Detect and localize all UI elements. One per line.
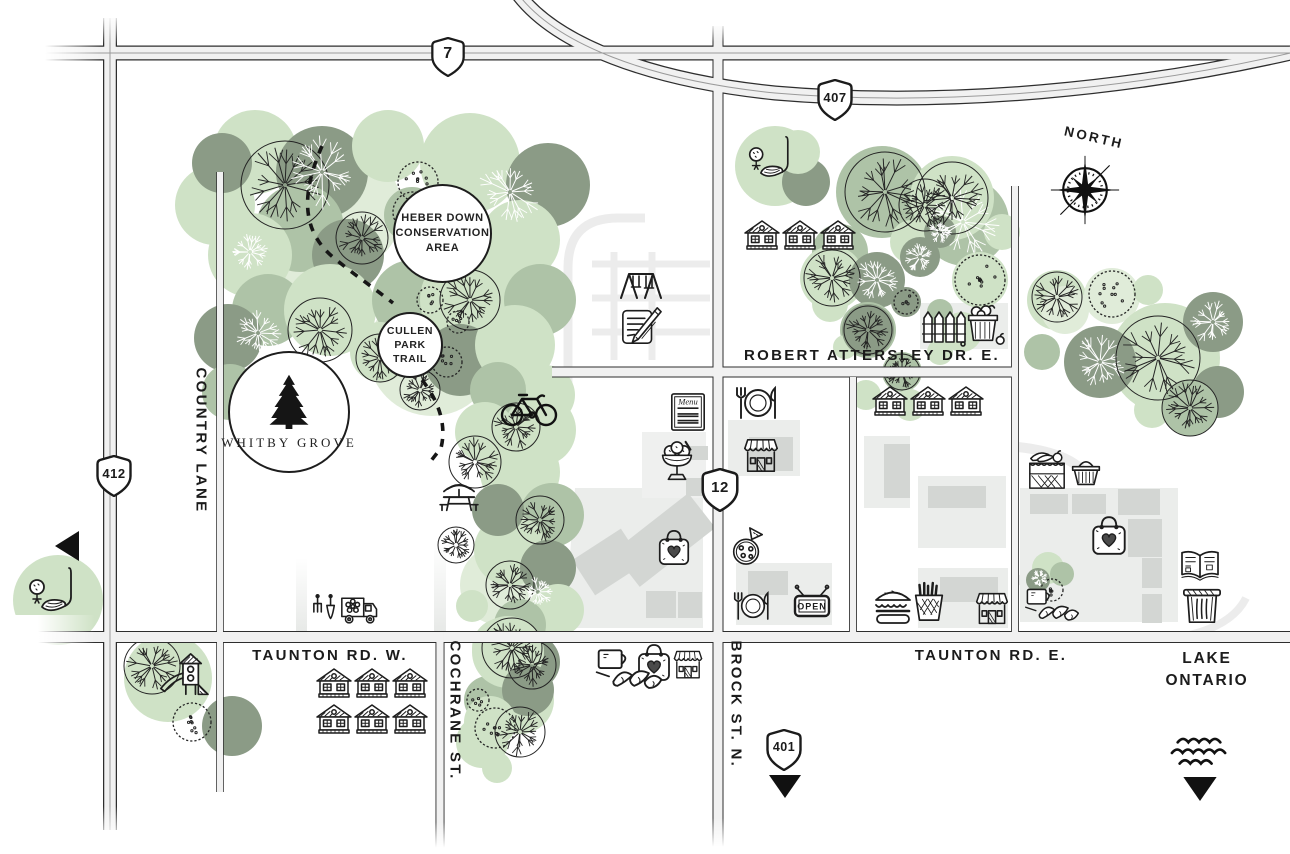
restaurant-plate-icon [735,382,781,424]
burger-icon [872,584,914,628]
storefront-icon [974,590,1010,628]
swing-set-icon [618,270,664,300]
golf-course-icon [24,562,84,624]
restaurant-plate-icon [733,586,773,626]
west-direction-arrow [54,530,80,562]
golf-course-icon [742,134,802,186]
cullen-park-trail-badge: CULLEN PARK TRAIL [377,312,443,378]
houses-row [744,220,856,252]
fruit-market-icon [1026,448,1068,492]
bicycle-icon [500,384,558,428]
school-notepad-icon [620,305,662,347]
street-label-country-lane: COUNTRY LANE [193,366,210,516]
garden-fence-icon [920,308,966,348]
shopping-basket-icon [1070,456,1102,488]
whitby-grove-logo-badge: WHITBY GROVE [228,351,350,473]
harvest-basket-icon [962,304,1004,348]
cafe-croissant-icon [592,644,666,690]
storefront-icon [742,437,780,475]
library-book-icon [1178,548,1222,584]
highway-401-shield: 401 [762,729,806,771]
pizza-icon [728,526,766,566]
gift-bag-heart-icon [655,528,693,568]
cafe-croissant-icon [1024,582,1080,624]
community-map: 7 407 412 12 401 COUNTRY LANE COCHRANE S… [0,0,1290,854]
flower-delivery-truck-icon [340,594,382,628]
street-label-taunton-e: TAUNTON RD. E. [900,647,1082,664]
ice-cream-sundae-icon [658,440,696,488]
highway-412-shield: 412 [93,455,135,497]
street-label-robert-attersley: ROBERT ATTERSLEY DR. E. [744,347,984,364]
compass-rose-icon [1049,154,1121,226]
highway-407-shield: 407 [812,79,858,121]
houses-row [316,704,428,736]
waste-bin-icon [1180,584,1224,626]
houses-row [316,668,428,700]
highway-401-direction-arrow [768,774,802,799]
garden-tools-icon [312,594,338,628]
picnic-table-icon [438,482,480,516]
menu-board-icon: Menu [668,390,708,434]
street-label-brock: BROCK ST. N. [728,641,745,767]
menu-sign-text: Menu [677,396,698,406]
storefront-icon [672,648,704,682]
highway-12-shield: 12 [699,468,741,512]
heber-down-conservation-area-badge: HEBER DOWN CONSERVATION AREA [393,184,492,283]
open-sign-text: OPEN [797,602,827,612]
brand-name: WHITBY GROVE [221,435,357,451]
fries-icon [910,580,948,626]
gift-bag-heart-icon [1088,514,1130,558]
street-label-cochrane: COCHRANE ST. [447,641,464,781]
houses-row [872,386,984,418]
highway-7-shield: 7 [429,37,467,77]
pine-tree-icon [266,373,312,429]
street-label-taunton-w: TAUNTON RD. W. [240,647,420,664]
playground-icon [154,652,210,702]
open-sign-icon: OPEN [790,584,834,624]
lake-direction-arrow [1182,776,1218,802]
lake-ontario-label: LAKE ONTARIO [1148,648,1266,693]
lake-waves-icon [1170,734,1228,770]
